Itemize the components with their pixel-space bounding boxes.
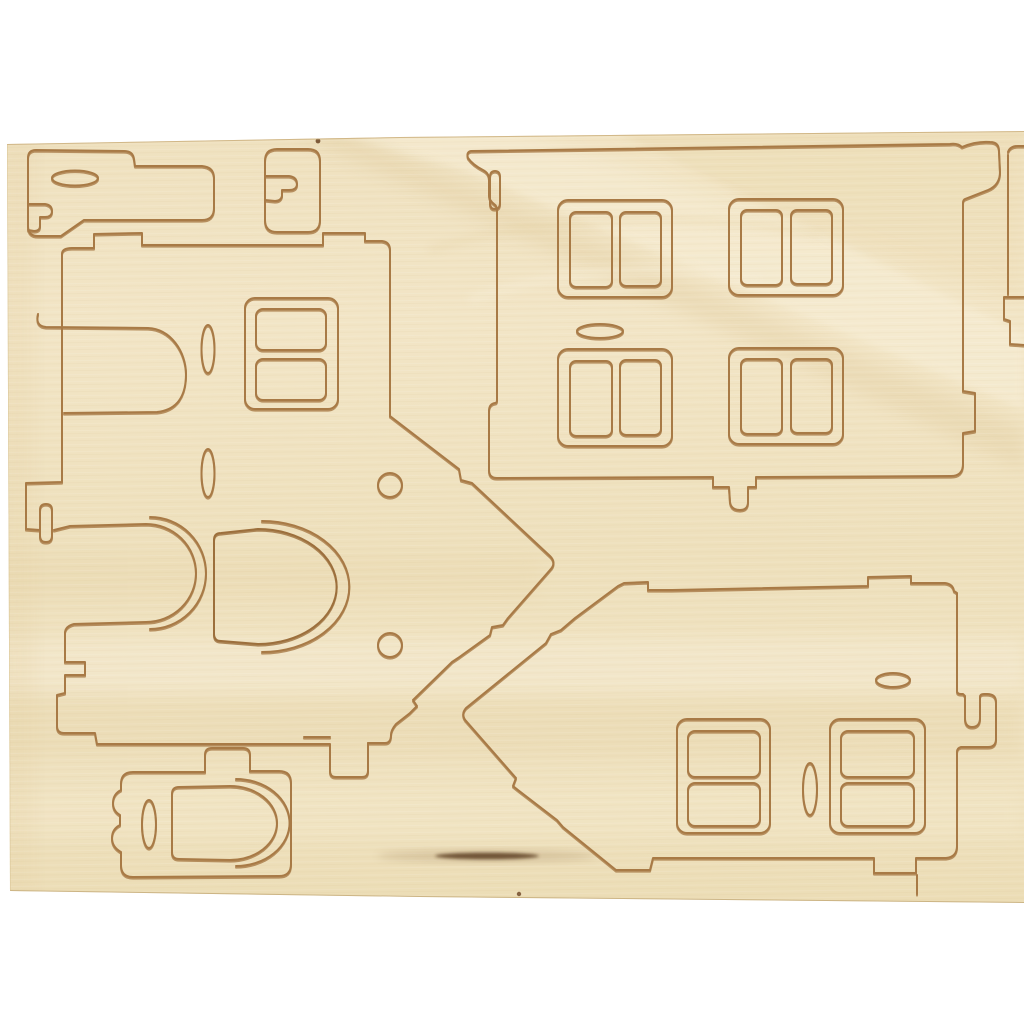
wood-knot bbox=[377, 850, 597, 862]
product-photo: Light birch plywood sheet with laser pre… bbox=[0, 0, 1024, 1024]
wood-grain bbox=[0, 0, 1024, 1024]
plywood-sheet bbox=[0, 0, 1024, 1024]
plywood-sheet-photo: Light birch plywood sheet with laser pre… bbox=[0, 0, 1024, 1024]
